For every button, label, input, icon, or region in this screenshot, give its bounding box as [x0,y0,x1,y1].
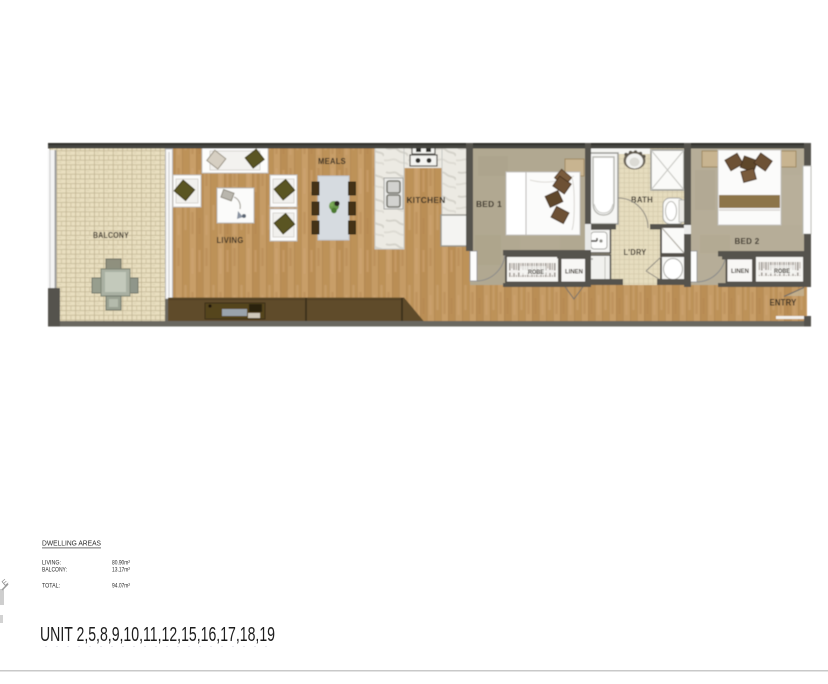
svg-text:ROBE: ROBE [528,269,545,276]
svg-text:LINEN: LINEN [565,269,583,276]
svg-text:TOTAL:: TOTAL: [42,583,60,590]
svg-text:80.90m²: 80.90m² [112,560,130,567]
svg-text:L'DRY: L'DRY [624,248,647,257]
svg-text:ENTRY: ENTRY [770,297,797,308]
svg-text:LIVING:: LIVING: [42,560,61,567]
svg-text:BALCONY:: BALCONY: [42,567,67,574]
svg-text:DWELLING AREAS: DWELLING AREAS [42,539,101,548]
svg-text:LINEN: LINEN [731,268,749,275]
svg-text:BED 2: BED 2 [735,237,760,246]
svg-text:MEALS: MEALS [318,157,346,166]
svg-text:13.17m²: 13.17m² [112,567,130,574]
svg-text:94.07m²: 94.07m² [112,583,130,590]
svg-text:BALCONY: BALCONY [93,231,129,240]
svg-text:ROBE: ROBE [774,268,791,275]
svg-text:BED 1: BED 1 [476,200,502,209]
svg-text:UNIT 2,5,8,9,10,11,12,15,16,1: UNIT 2,5,8,9,10,11,12,15,16,17,18,19 [40,624,275,646]
svg-text:LIVING: LIVING [217,236,244,245]
svg-text:KITCHEN: KITCHEN [407,196,446,205]
